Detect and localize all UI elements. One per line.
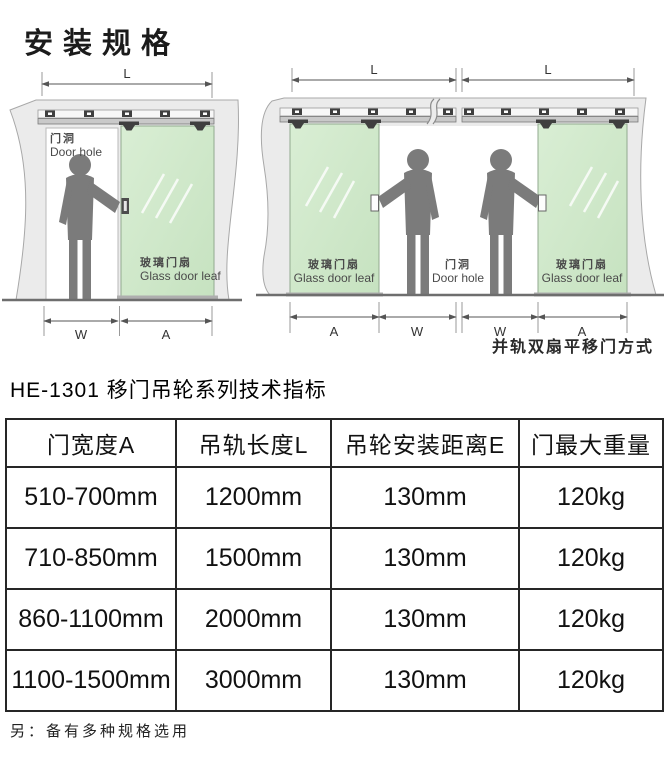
glass-right-label-cn: 玻璃门扇 — [556, 257, 608, 271]
double-door-diagram: 玻璃门扇 Glass door leaf 门洞 Door hole 玻璃门扇 G… — [250, 56, 668, 368]
cell-rail-length: 2000mm — [176, 589, 331, 650]
single-door-diagram: 门洞 Door hole 玻璃门扇 Glass door leaf L W A — [2, 58, 250, 360]
door-hole-label-cn: 门洞 — [445, 257, 471, 271]
door-hole-label-cn: 门洞 — [50, 131, 76, 145]
spec-table-title: HE-1301 移门吊轮系列技术指标 — [10, 374, 327, 404]
glass-left-label-en: Glass door leaf — [294, 271, 375, 285]
glass-right-label-en: Glass door leaf — [542, 271, 623, 285]
footnote: 另：备有多种规格选用 — [10, 720, 190, 741]
col-header-wheel-distance: 吊轮安装距离E — [331, 419, 519, 467]
cell-door-width: 510-700mm — [6, 467, 176, 528]
cell-rail-length: 1200mm — [176, 467, 331, 528]
table-row: 860-1100mm 2000mm 130mm 120kg — [6, 589, 663, 650]
cell-door-width: 1100-1500mm — [6, 650, 176, 711]
glass-door-label-cn: 玻璃门扇 — [140, 255, 192, 269]
table-row: 1100-1500mm 3000mm 130mm 120kg — [6, 650, 663, 711]
cell-wheel-distance: 130mm — [331, 650, 519, 711]
cell-max-weight: 120kg — [519, 528, 663, 589]
dimension-WA — [44, 306, 212, 336]
dim-W1-label: W — [411, 324, 424, 339]
spec-sheet-page: 安装规格 — [0, 0, 670, 784]
table-row: 710-850mm 1500mm 130mm 120kg — [6, 528, 663, 589]
cell-wheel-distance: 130mm — [331, 528, 519, 589]
diagram-caption: 并轨双扇平移门方式 — [492, 337, 654, 356]
cell-door-width: 710-850mm — [6, 528, 176, 589]
table-header-row: 门宽度A 吊轨长度L 吊轮安装距离E 门最大重量 — [6, 419, 663, 467]
door-handle-right — [539, 195, 547, 211]
glass-door-label-en: Glass door leaf — [140, 269, 221, 283]
dimension-W-label: W — [75, 327, 88, 342]
cell-max-weight: 120kg — [519, 650, 663, 711]
col-header-door-width: 门宽度A — [6, 419, 176, 467]
cell-wheel-distance: 130mm — [331, 589, 519, 650]
track-plate-right — [462, 108, 638, 116]
door-handle — [122, 198, 130, 214]
door-hole-label-en: Door hole — [432, 271, 484, 285]
dimension-AWWA — [290, 302, 627, 333]
dimension-A-label: A — [162, 327, 171, 342]
dimension-L-label: L — [123, 66, 130, 81]
page-title: 安装规格 — [24, 20, 180, 62]
cell-rail-length: 3000mm — [176, 650, 331, 711]
dimension-L-left-label: L — [370, 62, 377, 77]
dim-W2-label: W — [494, 324, 507, 339]
dim-A1-label: A — [330, 324, 339, 339]
cell-wheel-distance: 130mm — [331, 467, 519, 528]
col-header-rail-length: 吊轨长度L — [176, 419, 331, 467]
cell-rail-length: 1500mm — [176, 528, 331, 589]
spec-table: 门宽度A 吊轨长度L 吊轮安装距离E 门最大重量 510-700mm 1200m… — [5, 418, 664, 712]
cell-door-width: 860-1100mm — [6, 589, 176, 650]
dim-A2-label: A — [578, 324, 587, 339]
door-hole-label-en: Door hole — [50, 145, 102, 159]
dimension-L-right-label: L — [544, 62, 551, 77]
glass-left-label-cn: 玻璃门扇 — [308, 257, 360, 271]
door-handle-left — [371, 195, 379, 211]
table-row: 510-700mm 1200mm 130mm 120kg — [6, 467, 663, 528]
cell-max-weight: 120kg — [519, 589, 663, 650]
cell-max-weight: 120kg — [519, 467, 663, 528]
col-header-max-door-weight: 门最大重量 — [519, 419, 663, 467]
